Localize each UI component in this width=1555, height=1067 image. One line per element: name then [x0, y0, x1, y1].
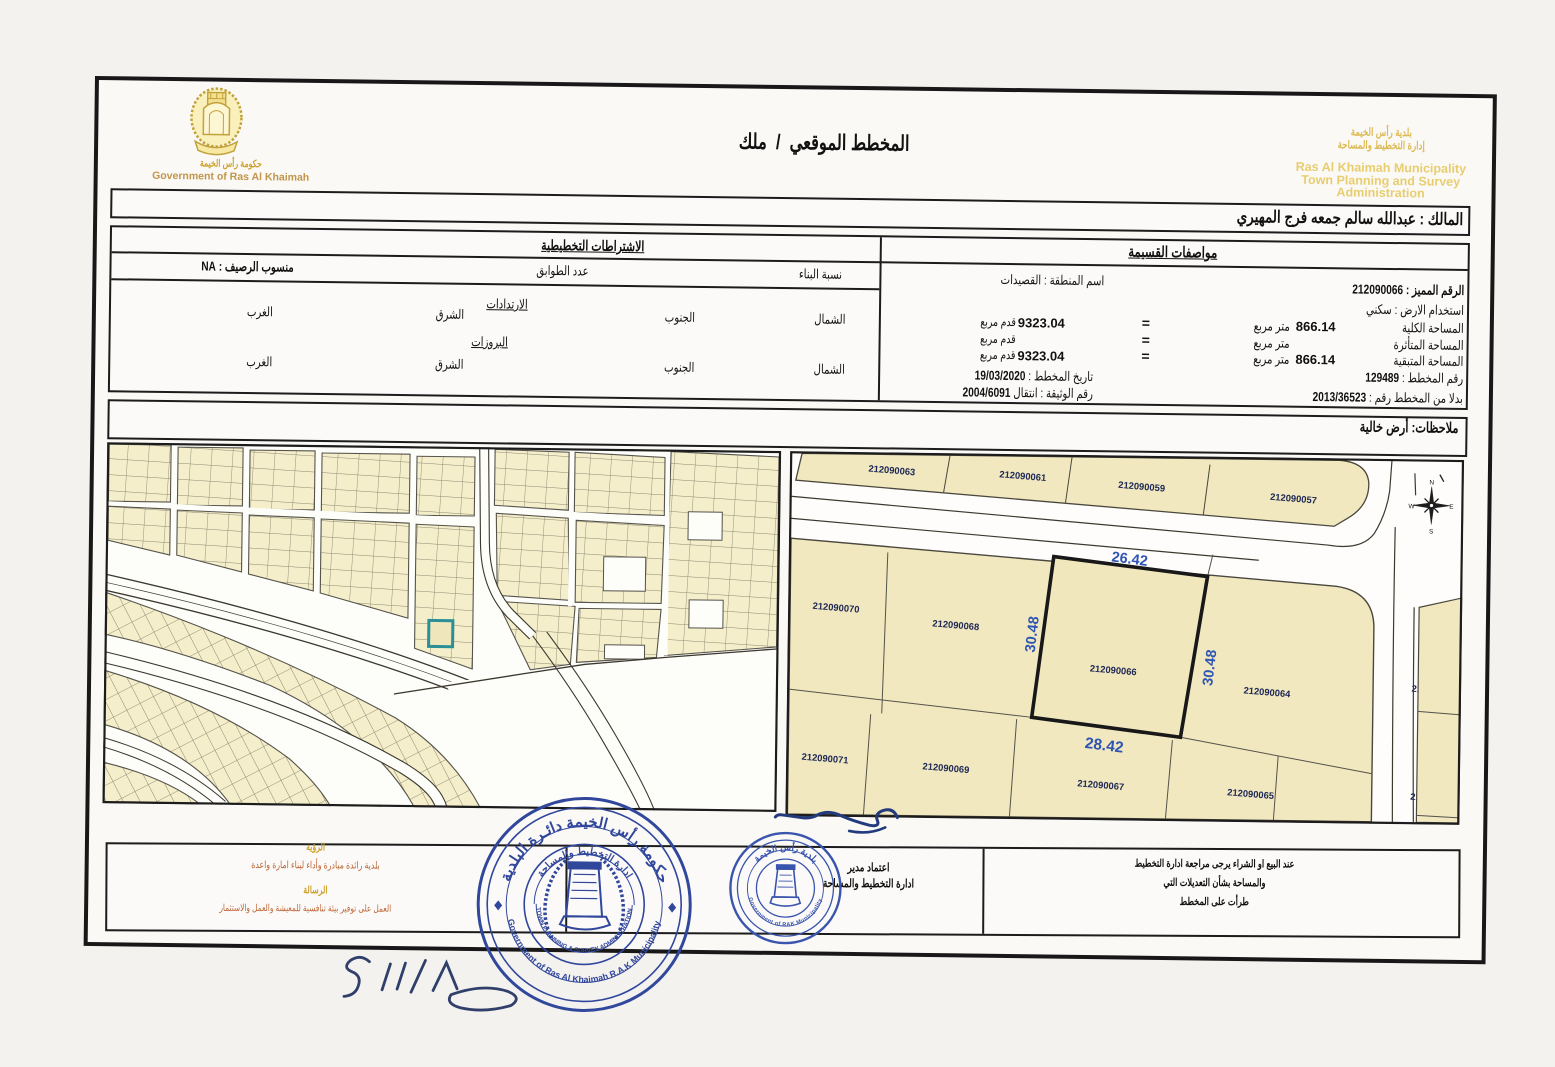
svg-text:TOWN PLANNING & SURVEY ADMINIS: TOWN PLANNING & SURVEY ADMINISTRATION: [534, 906, 634, 955]
svg-text:بلدية رأس الخيمة: بلدية رأس الخيمة: [752, 840, 821, 865]
svg-text:Government of RAK Municipality: Government of RAK Municipality: [746, 896, 824, 928]
